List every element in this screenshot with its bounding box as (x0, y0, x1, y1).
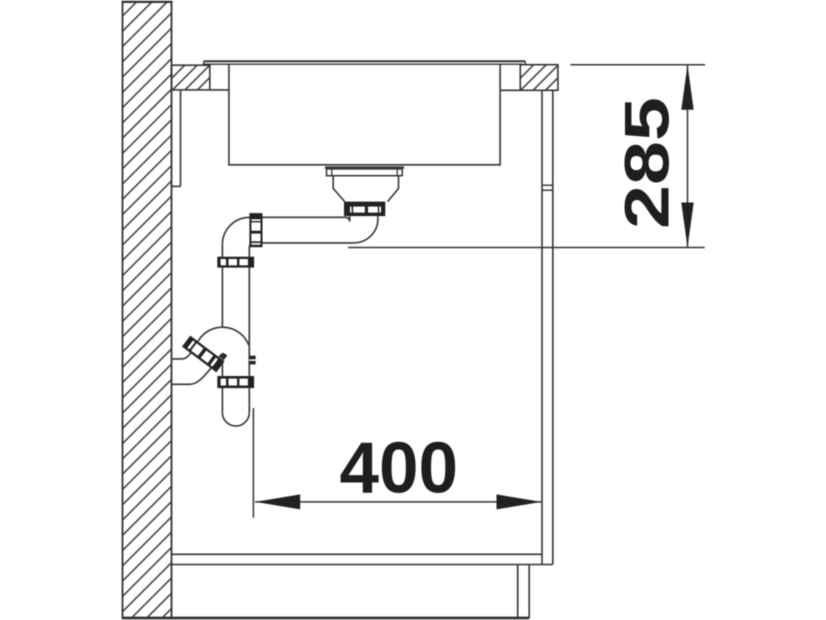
svg-text:400: 400 (340, 429, 459, 509)
svg-text:285: 285 (612, 97, 682, 229)
